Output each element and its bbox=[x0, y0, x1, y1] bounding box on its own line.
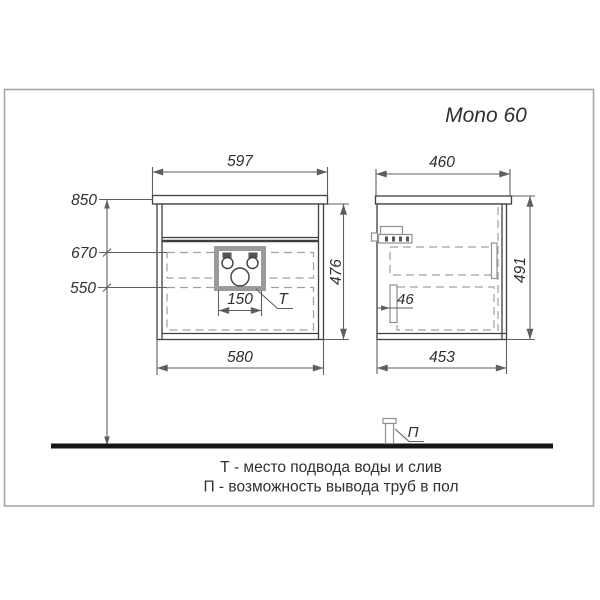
dim-597-extensions bbox=[153, 167, 328, 196]
level-850-label: 850 bbox=[71, 192, 97, 209]
water-valve-left-icon bbox=[222, 258, 233, 269]
connection-t-label: T bbox=[278, 291, 289, 308]
dim-491-label: 491 bbox=[512, 257, 529, 283]
side-view: 460 453 491 46 bbox=[372, 154, 536, 374]
floor-section: П bbox=[51, 419, 553, 447]
dim-460-extensions bbox=[376, 169, 510, 196]
datum-arrow-top bbox=[104, 200, 110, 209]
pipe-p-label: П bbox=[408, 424, 419, 441]
drawer2-slide-block bbox=[390, 285, 397, 323]
level-550-label: 550 bbox=[70, 280, 96, 297]
dim-46-label: 46 bbox=[397, 291, 414, 308]
water-valve-right-icon bbox=[247, 258, 258, 269]
dim-453-label: 453 bbox=[429, 349, 455, 366]
drawing-title: Mono 60 bbox=[445, 104, 527, 127]
technical-drawing-page: Mono 60 597 580 476 bbox=[0, 0, 600, 600]
vanity-dimension-drawing: Mono 60 597 580 476 bbox=[0, 0, 600, 600]
legend-line-1: Т - место подвода воды и слив bbox=[220, 459, 442, 476]
dim-597-label: 597 bbox=[227, 153, 254, 170]
dim-580-label: 580 bbox=[227, 349, 253, 366]
dim-150-label: 150 bbox=[227, 291, 253, 308]
drawer1-slide-block bbox=[492, 243, 498, 279]
front-countertop bbox=[153, 196, 328, 205]
drain-hole-icon bbox=[231, 268, 249, 286]
dim-476-label: 476 bbox=[328, 259, 345, 285]
dim-460-label: 460 bbox=[429, 154, 455, 171]
legend-line-2: П - возможность вывода труб в пол bbox=[203, 479, 458, 496]
floor-pipe-icon bbox=[383, 419, 396, 444]
front-view: 597 580 476 850 670 550 150 T bbox=[70, 153, 349, 446]
side-countertop bbox=[376, 196, 512, 204]
level-670-label: 670 bbox=[71, 245, 97, 262]
